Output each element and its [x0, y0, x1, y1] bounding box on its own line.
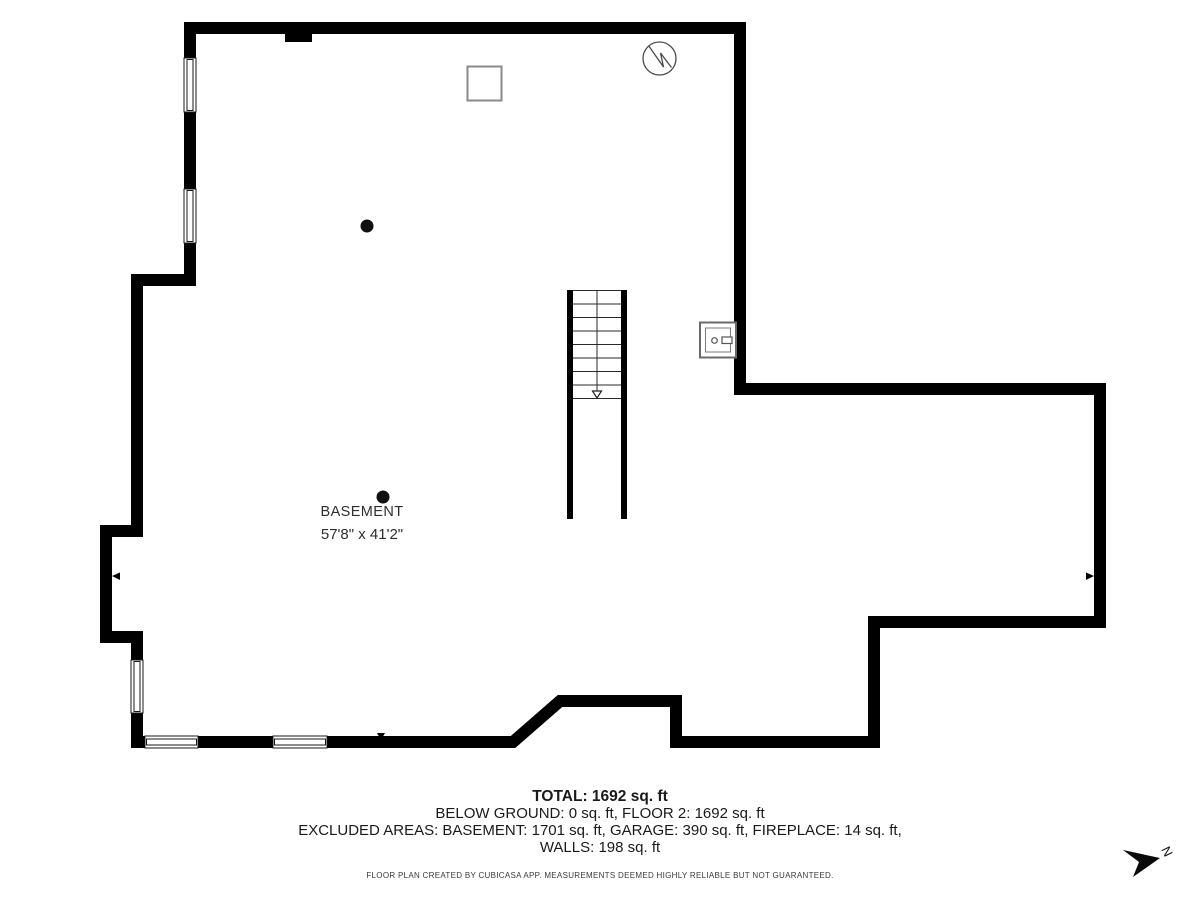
window — [184, 58, 196, 112]
marker-left — [112, 573, 120, 581]
window — [131, 660, 143, 713]
floor-plan-page: N BASEMENT 57'8" x 41'2" TOTAL: 1692 sq.… — [0, 0, 1200, 900]
window — [145, 736, 198, 748]
floor-plan-drawing: N — [0, 0, 1200, 900]
room-dimensions: 57'8" x 41'2" — [282, 526, 442, 543]
window — [184, 189, 196, 243]
column-dot — [361, 220, 374, 233]
fixture-square-icon — [468, 67, 502, 101]
summary-walls: WALLS: 198 sq. ft — [0, 839, 1200, 856]
staircase — [570, 290, 624, 519]
electrical-panel-icon — [700, 323, 736, 358]
wall-bump — [285, 22, 312, 42]
windows — [131, 58, 327, 748]
summary-excluded-areas: EXCLUDED AREAS: BASEMENT: 1701 sq. ft, G… — [0, 822, 1200, 839]
stair-direction-arrow — [593, 391, 602, 398]
disclaimer-text: FLOOR PLAN CREATED BY CUBICASA APP. MEAS… — [0, 871, 1200, 880]
summary-below-ground: BELOW GROUND: 0 sq. ft, FLOOR 2: 1692 sq… — [0, 805, 1200, 822]
column-dot — [377, 491, 390, 504]
water-heater-icon — [643, 42, 676, 75]
area-summary: TOTAL: 1692 sq. ft BELOW GROUND: 0 sq. f… — [0, 788, 1200, 856]
summary-total: TOTAL: 1692 sq. ft — [0, 788, 1200, 805]
window — [273, 736, 327, 748]
marker-right — [1086, 573, 1094, 581]
room-label: BASEMENT — [282, 504, 442, 520]
